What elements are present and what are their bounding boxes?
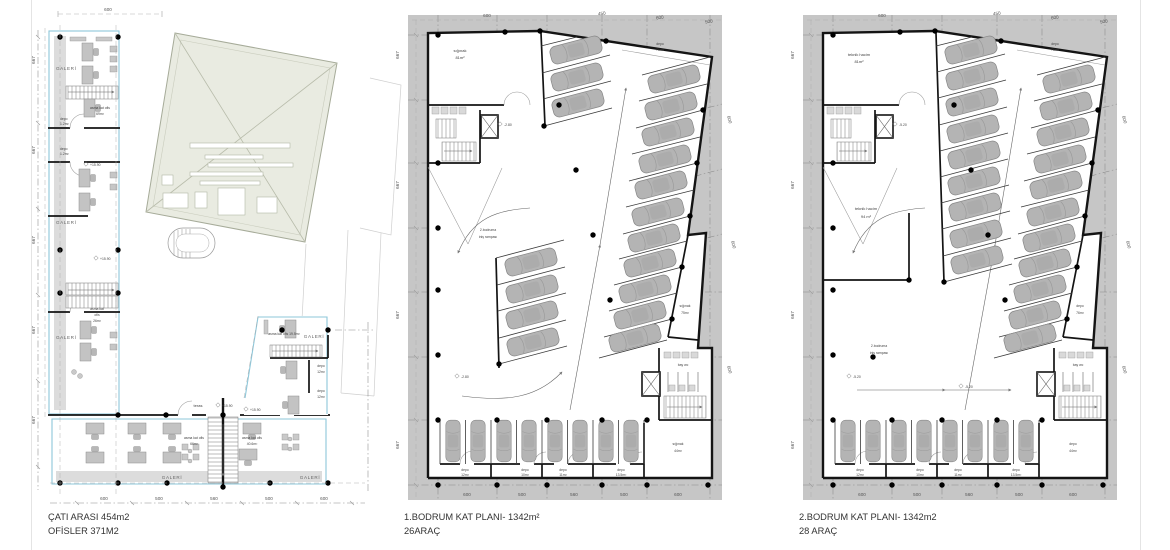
label-room: 76m² — [656, 48, 665, 52]
parking-row-bottom — [440, 420, 644, 464]
dim-label: 667 — [790, 181, 795, 189]
label-teras: teras — [194, 403, 203, 408]
dim-label: 667 — [395, 441, 400, 449]
dim-label: 600 — [1125, 240, 1132, 249]
label-ofis: ofis — [94, 313, 100, 317]
dim-label: 600 — [483, 13, 491, 18]
level-marker: +15.90 — [250, 408, 261, 412]
stairs — [66, 86, 118, 99]
dim-label: 667 — [395, 181, 400, 189]
plan-subtitle: 26ARAÇ — [404, 526, 440, 536]
label-ofis: asma kat ofis — [242, 436, 262, 440]
dim-label: 667 — [31, 56, 36, 64]
level-marker: -5.20 — [899, 123, 907, 127]
label-depot: depo — [617, 468, 625, 472]
label-depot: 12m² — [461, 473, 470, 477]
dim-label: 500 — [265, 496, 273, 501]
label-depot: 11m² — [954, 473, 962, 477]
dim-label: 667 — [31, 416, 36, 424]
dim-label: 667 — [31, 236, 36, 244]
label-wc: bay wc — [678, 363, 689, 367]
label-room: 81m² — [854, 59, 864, 64]
dim-label: 600 — [726, 365, 733, 374]
label-depot: 10m² — [521, 473, 530, 477]
label-ofis: asma kat ofis — [90, 106, 110, 110]
level-marker: -5.20 — [853, 375, 861, 379]
architectural-sheet: 600 667 667 667 667 667 600 500 560 500 … — [0, 0, 1170, 550]
plan-title: 1.BODRUM KAT PLANI- 1342m² — [404, 512, 540, 522]
dim-label: 667 — [395, 311, 400, 319]
label-ofis: 69m² — [96, 112, 105, 116]
label-depo: 12m² — [317, 395, 326, 399]
label-ramp: iniş rampası — [870, 351, 888, 355]
dim-label: 600 — [100, 496, 108, 501]
stairs — [436, 119, 456, 138]
label-room: teknik hacim — [855, 206, 878, 211]
label-room: 76m² — [1051, 48, 1060, 52]
stairs — [66, 283, 118, 295]
dim-label: 560 — [210, 496, 218, 501]
label-ofis: 66m² — [190, 442, 199, 446]
label-galeri: GALERİ — [162, 474, 182, 480]
dim-label: 600 — [726, 115, 733, 124]
dim-label: 600 — [858, 492, 866, 497]
plan-subtitle: OFİSLER 371M2 — [48, 526, 119, 536]
label-ofis: 26m² — [93, 319, 102, 323]
label-galeri: GALERİ — [56, 334, 76, 340]
label-wc: bay wc — [1073, 363, 1084, 367]
label-room: sığınak — [454, 48, 467, 53]
label-room: depo — [656, 42, 664, 46]
plan-title: 2.BODRUM KAT PLANI- 1342m2 — [799, 512, 937, 522]
level-marker: +15.90 — [90, 163, 101, 167]
level-marker: -2.80 — [461, 375, 469, 379]
dim-label: 600 — [1121, 115, 1128, 124]
label-depot: 10m² — [916, 473, 925, 477]
label-depot: depo — [916, 468, 924, 472]
label-room: 44m² — [1069, 449, 1078, 453]
label-depo: depo — [60, 147, 68, 151]
dim-label: 667 — [790, 441, 795, 449]
label-room: 76m² — [1076, 311, 1085, 315]
label-depot: depo — [461, 468, 469, 472]
dim-label: 600 — [674, 492, 682, 497]
label-depot: 12m² — [856, 473, 865, 477]
label-ofis: asma kat ofis 19.5m² — [268, 332, 300, 336]
dim-label: 560 — [570, 492, 578, 497]
dim-label: 500 — [620, 492, 628, 497]
level-marker: +15.90 — [100, 257, 111, 261]
dim-label: 600 — [463, 492, 471, 497]
label-room: depo — [1051, 42, 1059, 46]
label-depo: depo — [317, 389, 325, 393]
label-depot: depo — [559, 468, 567, 472]
label-depot: 13.5m² — [1011, 473, 1022, 477]
attic-plan-drawing: 600 667 667 667 667 667 600 500 560 500 … — [30, 0, 405, 550]
label-galeri: GALERİ — [304, 333, 324, 339]
dim-label: 500 — [155, 496, 163, 501]
right-wing — [244, 316, 328, 415]
label-depot: depo — [856, 468, 864, 472]
label-ofis: asma kat — [90, 307, 104, 311]
dim-label: 500 — [1015, 492, 1023, 497]
label-room: depo — [1069, 442, 1077, 446]
dim-label: 667 — [31, 146, 36, 154]
label-room: 94 m² — [861, 214, 872, 219]
label-galeri: GALERİ — [300, 474, 320, 480]
dim-label: 500 — [913, 492, 921, 497]
label-ramp: 2.bodruma — [871, 344, 887, 348]
gallery-band — [56, 471, 322, 482]
label-depo: 1.2m² — [60, 152, 70, 156]
label-room: sığınak — [673, 442, 684, 446]
label-galeri: GALERİ — [56, 65, 76, 71]
label-ramp: 2.bodruma — [480, 228, 496, 232]
label-depo: 12m² — [317, 370, 326, 374]
label-depot: 13.5m² — [616, 473, 627, 477]
label-depot: depo — [1012, 468, 1020, 472]
stairs — [837, 142, 871, 161]
level-marker: -5.20 — [965, 385, 973, 389]
plan-subtitle: 28 ARAÇ — [799, 526, 838, 536]
stairs — [442, 142, 476, 161]
label-depot: 11m² — [559, 473, 567, 477]
spiral-stair — [168, 228, 215, 258]
label-depot: depo — [954, 468, 962, 472]
parking-row-bottom — [835, 420, 1039, 464]
label-depot: depo — [521, 468, 529, 472]
basement2-plan-drawing: teknik hacim 81m² depo 76m² teknik hacim… — [787, 0, 1145, 550]
label-depo: depo — [317, 364, 325, 368]
dim-label: 600 — [1069, 492, 1077, 497]
label-room: 81m² — [455, 55, 465, 60]
stairs — [831, 119, 851, 138]
dim-label: 667 — [790, 311, 795, 319]
dim-label: 600 — [878, 13, 886, 18]
dim-label: 500 — [518, 492, 526, 497]
dim-label: 667 — [790, 51, 795, 59]
plan-title: ÇATI ARASI 454m2 — [48, 512, 129, 522]
dim-label: 600 — [104, 7, 112, 12]
label-depo: 1.2m² — [60, 122, 70, 126]
label-room: 75m² — [681, 311, 690, 315]
dim-label: 600 — [730, 240, 737, 249]
label-room: 44m² — [674, 449, 683, 453]
dim-label: 667 — [395, 51, 400, 59]
label-galeri: GALERİ — [56, 219, 76, 225]
level-marker: +15.90 — [222, 404, 233, 408]
label-depo: depo — [60, 117, 68, 121]
basement1-plan-drawing: sığınak 81m² depo 76m² sığınak 75m² sığı… — [392, 0, 750, 550]
roof-building — [146, 33, 337, 258]
level-marker: -2.80 — [504, 123, 512, 127]
dim-label: 560 — [965, 492, 973, 497]
label-room: sığınak — [680, 304, 691, 308]
dim-label: 600 — [1121, 365, 1128, 374]
label-ofis: asma kat ofis — [184, 436, 204, 440]
dim-label: 667 — [31, 326, 36, 334]
label-room: teknik hacim — [848, 52, 871, 57]
label-ramp: iniş rampası — [479, 235, 497, 239]
label-room: depo — [1076, 304, 1084, 308]
dim-label: 600 — [320, 496, 328, 501]
label-ofis: 40.6m² — [247, 442, 258, 446]
